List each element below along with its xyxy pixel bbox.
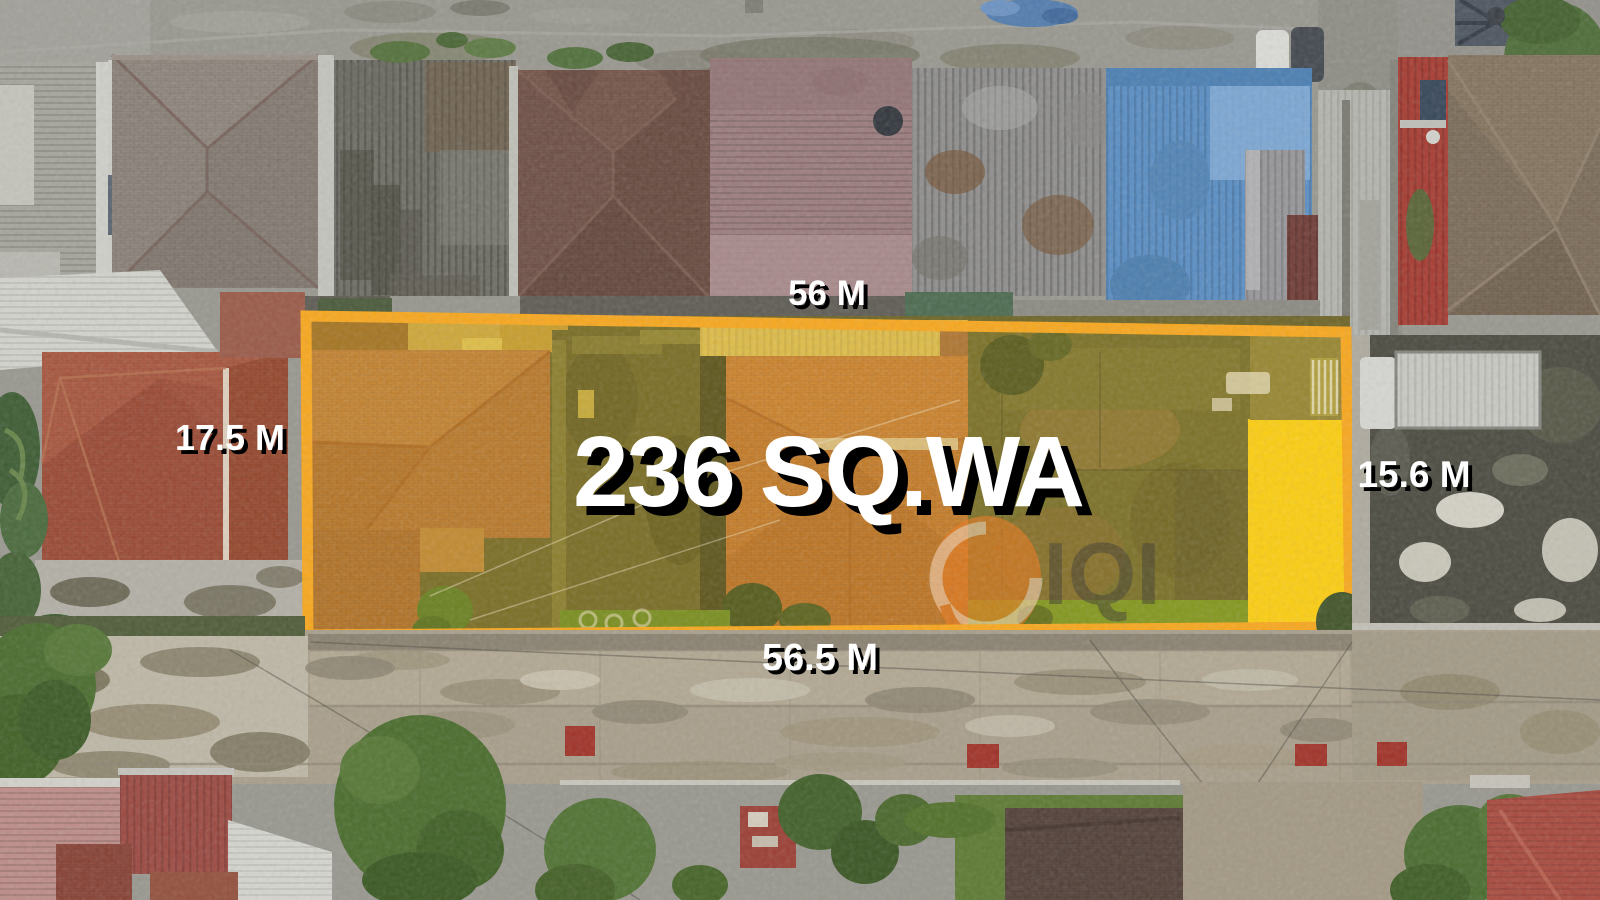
svg-text:56 M: 56 M [788, 274, 866, 313]
svg-text:56.5 M: 56.5 M [762, 637, 878, 679]
svg-text:17.5 M: 17.5 M [175, 417, 285, 458]
svg-text:15.6 M: 15.6 M [1357, 454, 1470, 495]
svg-text:236 SQ.WA: 236 SQ.WA [573, 416, 1083, 528]
